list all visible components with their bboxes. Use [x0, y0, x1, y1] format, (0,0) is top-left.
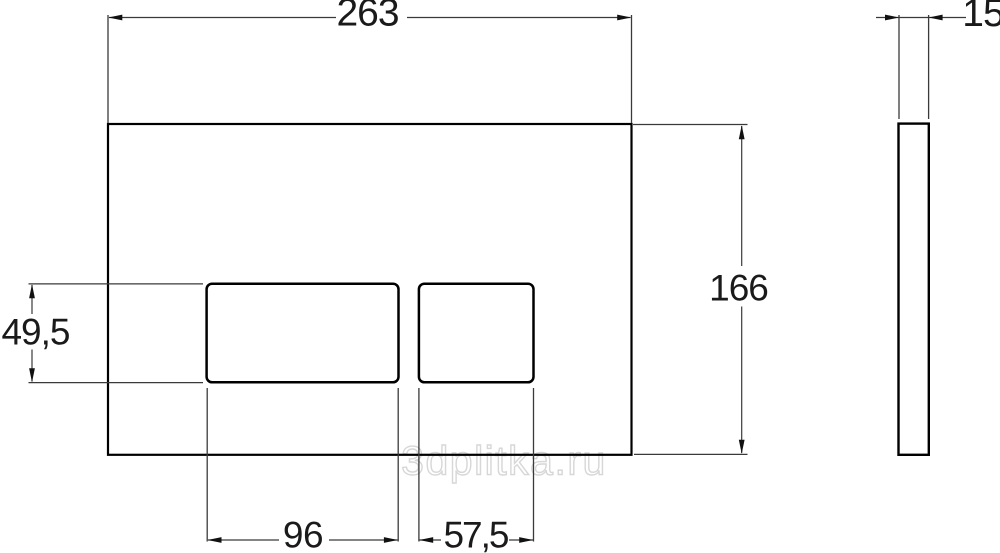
- svg-text:49,5: 49,5: [1, 311, 69, 352]
- svg-text:263: 263: [336, 0, 398, 35]
- svg-text:166: 166: [709, 267, 768, 308]
- svg-text:96: 96: [283, 514, 323, 553]
- svg-text:57,5: 57,5: [443, 514, 508, 553]
- svg-text:3dplitka.ru: 3dplitka.ru: [401, 438, 607, 484]
- svg-text:15: 15: [962, 0, 1000, 35]
